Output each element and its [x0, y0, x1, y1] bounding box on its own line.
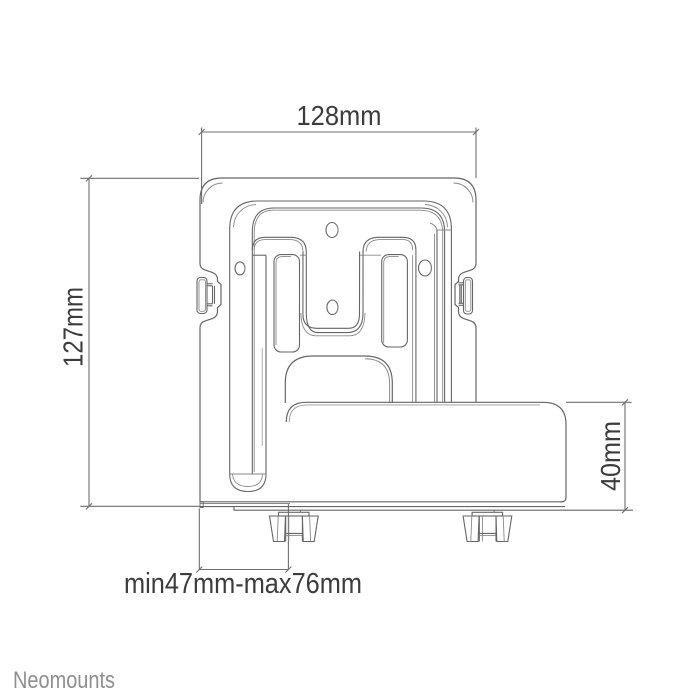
svg-text:Neomounts: Neomounts [13, 667, 115, 694]
svg-text:128mm: 128mm [297, 100, 382, 131]
svg-text:min47mm-max76mm: min47mm-max76mm [124, 568, 362, 600]
svg-text:127mm: 127mm [58, 287, 89, 367]
svg-text:40mm: 40mm [595, 421, 626, 491]
